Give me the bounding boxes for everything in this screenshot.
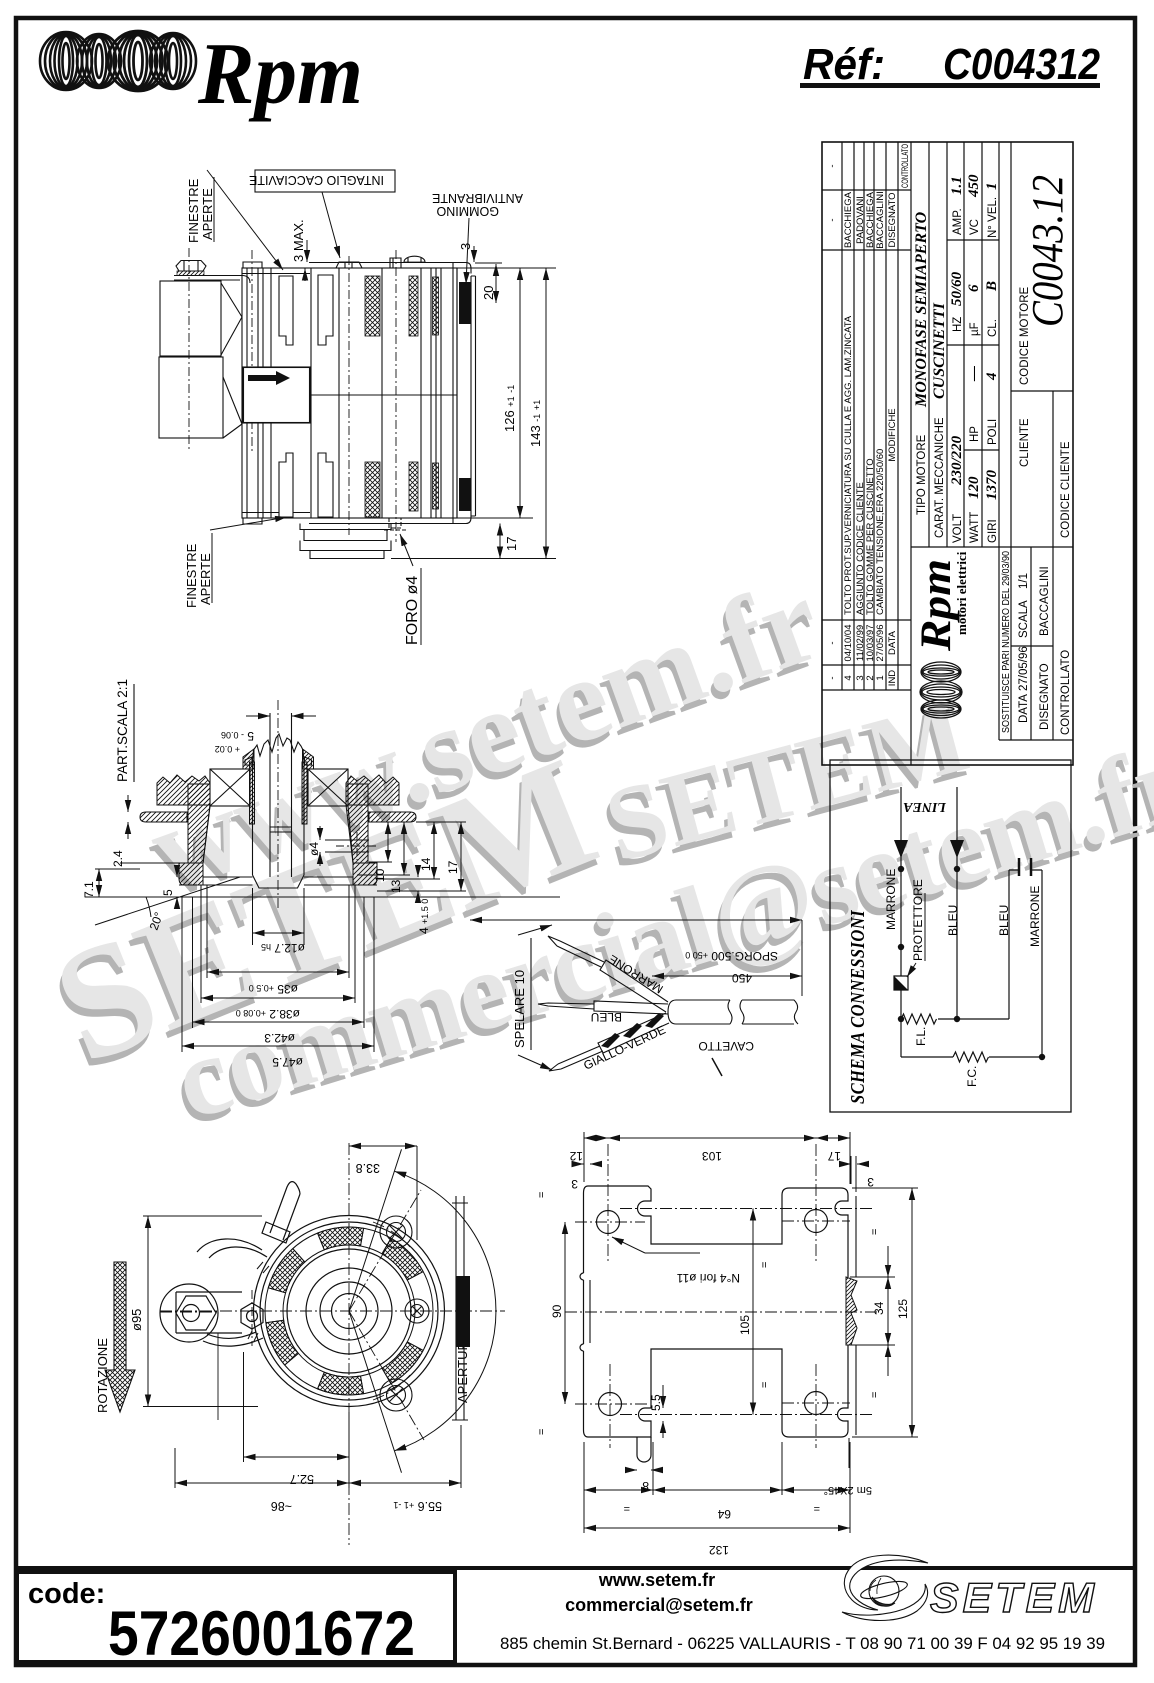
svg-text:code:: code: [28, 1578, 105, 1610]
svg-text:1: 1 [875, 675, 886, 680]
svg-text:04/10/04: 04/10/04 [843, 625, 854, 662]
svg-text:ø35 +0.5 0: ø35 +0.5 0 [249, 982, 298, 996]
svg-text:AMP.: AMP. [952, 208, 964, 235]
svg-text:INTAGLIO CACCIAVITE: INTAGLIO CACCIAVITE [249, 173, 384, 187]
svg-text:GOMMINO: GOMMINO [436, 204, 499, 218]
svg-text:APERTE: APERTE [200, 188, 215, 240]
svg-text:MARRONE: MARRONE [1028, 886, 1042, 947]
svg-text:TOLTO PROT.SUP.VERNICIATURA SU: TOLTO PROT.SUP.VERNICIATURA SU CULLA E A… [843, 315, 854, 615]
svg-text:-: - [827, 218, 838, 221]
svg-text:SCHEMA CONNESSIONI: SCHEMA CONNESSIONI [847, 909, 869, 1104]
svg-text:3: 3 [571, 1177, 578, 1191]
svg-text:3: 3 [458, 243, 473, 250]
svg-text:1/1: 1/1 [1018, 573, 1030, 589]
svg-text:5: 5 [161, 889, 175, 896]
svg-text:C004312: C004312 [943, 40, 1100, 89]
svg-text:-: - [827, 164, 838, 167]
svg-text:3 MAX.: 3 MAX. [291, 219, 306, 262]
svg-text:VC: VC [969, 219, 981, 235]
svg-text:ø47.5: ø47.5 [272, 1055, 303, 1069]
svg-text:~86: ~86 [271, 1499, 292, 1513]
svg-text:450: 450 [966, 174, 982, 198]
svg-text:=: = [869, 1229, 881, 1235]
svg-text:3: 3 [867, 1175, 874, 1189]
svg-text:CONTROLLATO: CONTROLLATO [900, 144, 911, 188]
svg-text:HZ: HZ [952, 317, 964, 332]
svg-text:FINESTRE: FINESTRE [184, 543, 199, 608]
svg-text:12: 12 [569, 1149, 583, 1163]
svg-text:4: 4 [843, 675, 854, 680]
svg-text:motori elettrici: motori elettrici [954, 551, 969, 635]
svg-text:5 - 0.06: 5 - 0.06 [221, 729, 254, 743]
svg-text:BLEU: BLEU [997, 905, 1011, 936]
svg-text:=: = [759, 1382, 771, 1388]
svg-text:Rpm: Rpm [197, 26, 363, 123]
svg-text:=: = [624, 1502, 630, 1514]
svg-text:DATA: DATA [1018, 694, 1030, 723]
svg-text:commercial@setem.fr: commercial@setem.fr [565, 1595, 753, 1615]
svg-text:MONOFASE SEMIAPERTO: MONOFASE SEMIAPERTO [913, 211, 930, 408]
svg-text:SETEM: SETEM [930, 1574, 1098, 1621]
svg-text:=: = [869, 1392, 881, 1398]
svg-text:DISEGNATO: DISEGNATO [887, 192, 898, 247]
svg-text:ø12.7 h5: ø12.7 h5 [261, 941, 305, 955]
svg-text:WATT: WATT [969, 512, 981, 543]
svg-text:14: 14 [419, 857, 433, 871]
svg-text:CAMBIATO TENSIONE,ERA 220/50/6: CAMBIATO TENSIONE,ERA 220/50/60 [875, 449, 886, 615]
svg-text:ø95: ø95 [129, 1309, 144, 1331]
svg-text:55.6 +1 -1: 55.6 +1 -1 [393, 1499, 442, 1513]
svg-text:1: 1 [984, 183, 1000, 191]
svg-text:+ 0.02: + 0.02 [215, 744, 240, 754]
svg-text:103: 103 [702, 1149, 722, 1163]
svg-text:FORO ø4: FORO ø4 [404, 576, 421, 645]
svg-text:4: 4 [984, 372, 1000, 381]
svg-text:17: 17 [504, 537, 519, 551]
svg-text:8: 8 [642, 1479, 649, 1493]
svg-text:BACCAGLINI: BACCAGLINI [875, 191, 886, 249]
svg-text:CL.: CL. [987, 319, 999, 337]
svg-text:13: 13 [389, 879, 403, 893]
svg-text:TIPO MOTORE: TIPO MOTORE [916, 434, 928, 515]
svg-text:SCALA: SCALA [1018, 600, 1030, 638]
svg-text:27/05/96: 27/05/96 [1018, 646, 1030, 691]
svg-text:132: 132 [709, 1543, 729, 1557]
svg-text:5m 2X45°: 5m 2X45° [824, 1484, 872, 1496]
svg-text:885 chemin St.Bernard - 0622: 885 chemin St.Bernard - 06225 VALLAURIS … [500, 1635, 1105, 1653]
svg-text:10: 10 [373, 868, 387, 882]
svg-text:125: 125 [896, 1299, 910, 1319]
svg-text:CARAT. MECCANICHE: CARAT. MECCANICHE [934, 417, 946, 538]
svg-text:1.1: 1.1 [949, 176, 965, 195]
svg-text:www.setem.fr: www.setem.fr [598, 1570, 715, 1590]
svg-text:C0043.12: C0043.12 [1023, 175, 1072, 327]
svg-text:1370: 1370 [984, 470, 1000, 501]
svg-text:DISEGNATO: DISEGNATO [1039, 663, 1051, 730]
svg-text:MARRONE: MARRONE [884, 869, 898, 930]
svg-text:BLEU: BLEU [946, 905, 960, 936]
svg-text:VOLT: VOLT [952, 514, 964, 543]
svg-text:105: 105 [738, 1315, 752, 1335]
svg-text:HP: HP [969, 426, 981, 442]
svg-text:120: 120 [966, 476, 982, 499]
svg-text:17: 17 [827, 1149, 841, 1163]
svg-text:—: — [966, 366, 982, 382]
svg-text:DATA: DATA [887, 630, 898, 655]
svg-text:=: = [536, 1429, 548, 1435]
svg-text:52.7: 52.7 [290, 1472, 314, 1486]
svg-text:34: 34 [872, 1301, 886, 1315]
svg-text:50/60: 50/60 [949, 271, 965, 306]
svg-text:BLEU: BLEU [591, 1010, 622, 1024]
svg-text:SOSTITUISCE PARI NUMERO DEL 29: SOSTITUISCE PARI NUMERO DEL 29/03/90 [1001, 551, 1012, 733]
svg-text:BACCHIEGA: BACCHIEGA [843, 191, 854, 248]
svg-text:B: B [984, 281, 1000, 292]
svg-text:17: 17 [446, 860, 460, 874]
svg-text:F.C.: F.C. [965, 1066, 979, 1087]
svg-text:MODIFICHE: MODIFICHE [887, 408, 898, 461]
svg-text:64: 64 [717, 1507, 731, 1521]
svg-text:7.1: 7.1 [82, 881, 96, 898]
svg-text:ø38.2 +0.08 0: ø38.2 +0.08 0 [236, 1007, 300, 1021]
svg-text:PART.SCALA 2:1: PART.SCALA 2:1 [115, 679, 130, 782]
svg-text:5726001672: 5726001672 [108, 1599, 415, 1669]
svg-text:5.5: 5.5 [649, 1394, 663, 1411]
svg-text:CODICE CLIENTE: CODICE CLIENTE [1060, 441, 1072, 538]
svg-text:Rpm: Rpm [913, 559, 960, 652]
svg-text:230/220: 230/220 [949, 435, 965, 486]
svg-text:6: 6 [966, 284, 982, 292]
svg-text:FINESTRE: FINESTRE [186, 178, 201, 243]
svg-text:ø42.3: ø42.3 [264, 1031, 295, 1045]
svg-text:BACCAGLINI: BACCAGLINI [1039, 566, 1051, 636]
svg-text:APERTE: APERTE [198, 553, 213, 605]
svg-text:20: 20 [481, 286, 496, 300]
svg-text:CUSCINETTI: CUSCINETTI [931, 302, 948, 399]
svg-text:LINEA: LINEA [903, 799, 947, 814]
svg-text:=: = [759, 1262, 771, 1268]
svg-text:F.L.: F.L. [914, 1027, 928, 1046]
svg-text:ANTIVIBRANTE: ANTIVIBRANTE [432, 191, 523, 205]
svg-text:4 +1.5 0: 4 +1.5 0 [417, 899, 431, 934]
svg-text:CONTROLLATO: CONTROLLATO [1060, 650, 1072, 735]
svg-text:CLIENTE: CLIENTE [1019, 418, 1031, 467]
svg-text:ø4: ø4 [307, 842, 321, 856]
svg-text:SPELARE 10: SPELARE 10 [512, 970, 527, 1048]
svg-text:Réf:: Réf: [803, 40, 885, 89]
svg-text:SPORG.500 +50 0: SPORG.500 +50 0 [685, 949, 778, 963]
svg-text:=: = [814, 1502, 820, 1514]
svg-text:27/05/96: 27/05/96 [875, 625, 886, 662]
svg-text:2.4: 2.4 [111, 850, 125, 867]
svg-text:33.8: 33.8 [356, 1161, 380, 1175]
svg-text:GIRI: GIRI [987, 519, 999, 543]
svg-text:N° VEL.: N° VEL. [987, 197, 999, 238]
svg-text:450: 450 [732, 971, 752, 985]
svg-text:90: 90 [550, 1304, 564, 1318]
svg-text:POLI: POLI [987, 419, 999, 445]
svg-text:N°4 fori ø11: N°4 fori ø11 [676, 1271, 740, 1285]
svg-text:µF: µF [969, 322, 981, 336]
svg-text:=: = [536, 1192, 548, 1198]
svg-text:-: - [827, 641, 838, 644]
svg-text:CAVETTO: CAVETTO [698, 1039, 754, 1053]
svg-text:IND: IND [887, 670, 898, 687]
svg-text:-: - [827, 676, 838, 679]
svg-text:PROTETTORE: PROTETTORE [911, 879, 925, 961]
